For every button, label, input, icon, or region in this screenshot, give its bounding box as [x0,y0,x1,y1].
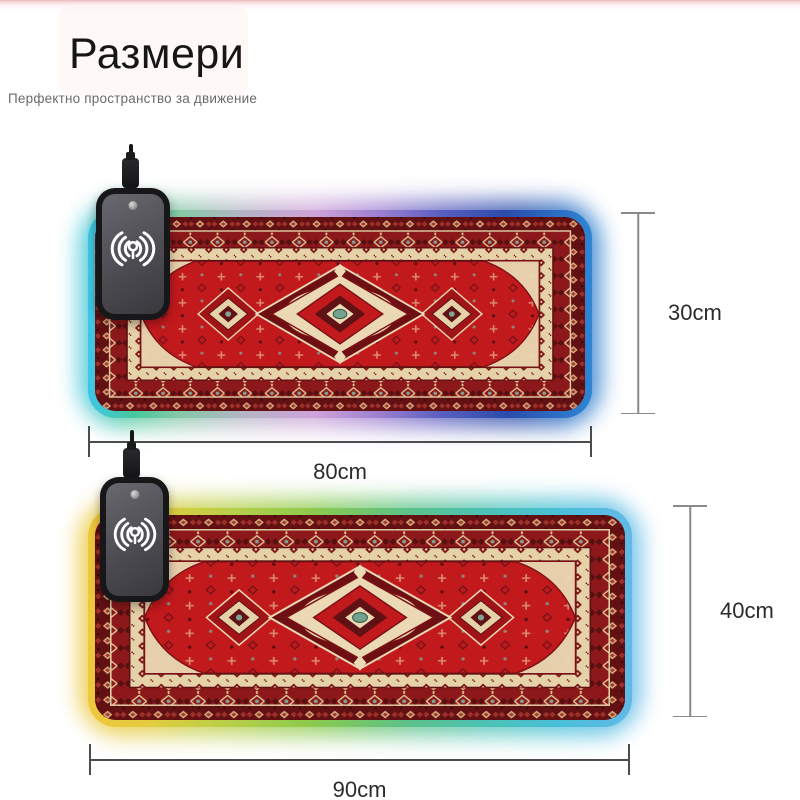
dimension-line [637,212,639,414]
dimension-tick [590,426,592,457]
mousepad-90x40 [88,508,632,727]
dimension-tick [673,716,707,718]
charger-body [100,477,169,602]
product-size-diagram: Размери Перфектно пространство за движен… [0,0,800,800]
height-label-pad1: 30cm [668,300,722,326]
charger-cable-plug [122,158,139,188]
height-label-pad2: 40cm [720,598,774,624]
width-label-pad1: 80cm [313,459,367,485]
charger-cable-plug [123,448,140,478]
width-dimension-pad2: 90cm [89,744,630,775]
dimension-tick [621,413,655,415]
page-subtitle: Перфектно пространство за движение [8,91,257,106]
charger-logo-icon [130,490,139,499]
charger-surface [106,483,163,596]
qi-wireless-charging-icon [106,226,160,270]
page-title: Размери [69,30,244,79]
charger-body [96,188,170,320]
persian-carpet-artwork [95,515,625,720]
height-dimension-pad2: 40cm [673,505,707,717]
wireless-charger-pad2 [100,430,169,602]
dimension-line [89,759,630,761]
qi-wireless-charging-icon [109,513,161,555]
charger-surface [102,194,164,314]
dimension-tick [628,744,630,775]
wireless-charger-pad1 [96,144,170,320]
width-label-pad2: 90cm [333,777,387,800]
dimension-line [689,505,691,717]
height-dimension-pad1: 30cm [621,212,655,414]
charger-logo-icon [129,201,138,210]
